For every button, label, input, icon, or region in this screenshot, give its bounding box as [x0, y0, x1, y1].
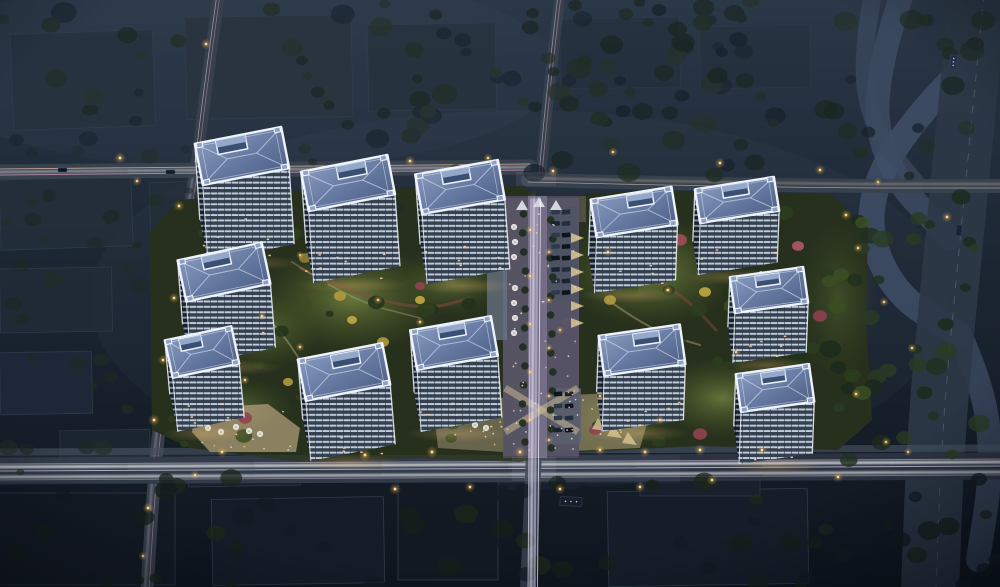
- render-viewport: Night aerial rendering of a lit resident…: [0, 0, 1000, 587]
- aerial-night-render: Night aerial rendering of a lit resident…: [0, 0, 1000, 587]
- vignette-overlay: [0, 0, 1000, 587]
